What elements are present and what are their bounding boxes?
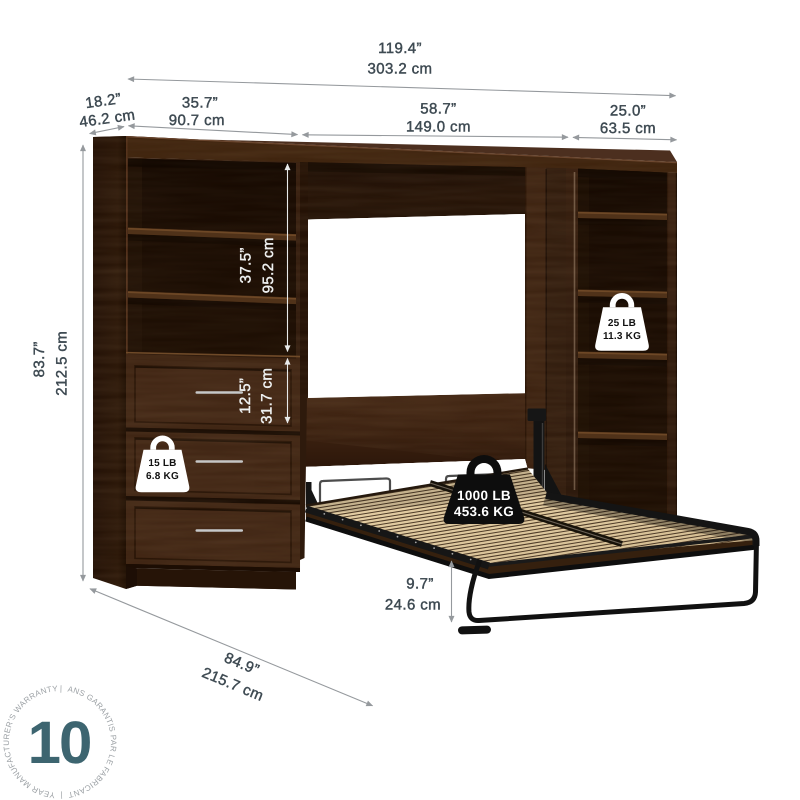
svg-text:212.5 cm: 212.5 cm xyxy=(54,331,71,396)
svg-text:63.5 cm: 63.5 cm xyxy=(600,120,656,137)
svg-text:95.2 cm: 95.2 cm xyxy=(260,237,277,293)
svg-text:149.0 cm: 149.0 cm xyxy=(406,118,471,135)
svg-text:35.7”: 35.7” xyxy=(182,94,218,111)
svg-text:119.4”: 119.4” xyxy=(378,40,422,57)
svg-text:83.7”: 83.7” xyxy=(31,341,48,377)
svg-text:11.3 KG: 11.3 KG xyxy=(603,331,641,342)
svg-text:15 LB: 15 LB xyxy=(148,458,176,469)
svg-text:58.7”: 58.7” xyxy=(420,101,456,118)
svg-text:6.8 KG: 6.8 KG xyxy=(146,471,179,482)
svg-text:12.5”: 12.5” xyxy=(237,378,254,414)
svg-text:24.6 cm: 24.6 cm xyxy=(385,596,441,613)
svg-text:37.5”: 37.5” xyxy=(237,247,254,283)
svg-text:25.0”: 25.0” xyxy=(610,102,646,119)
svg-text:9.7”: 9.7” xyxy=(406,575,433,592)
svg-text:1000 LB: 1000 LB xyxy=(457,488,511,503)
svg-text:25 LB: 25 LB xyxy=(608,318,636,329)
svg-text:31.7 cm: 31.7 cm xyxy=(259,368,276,424)
svg-text:90.7 cm: 90.7 cm xyxy=(169,112,225,129)
svg-text:453.6 KG: 453.6 KG xyxy=(454,504,514,519)
svg-text:303.2 cm: 303.2 cm xyxy=(368,61,433,78)
svg-text:10: 10 xyxy=(28,709,91,776)
